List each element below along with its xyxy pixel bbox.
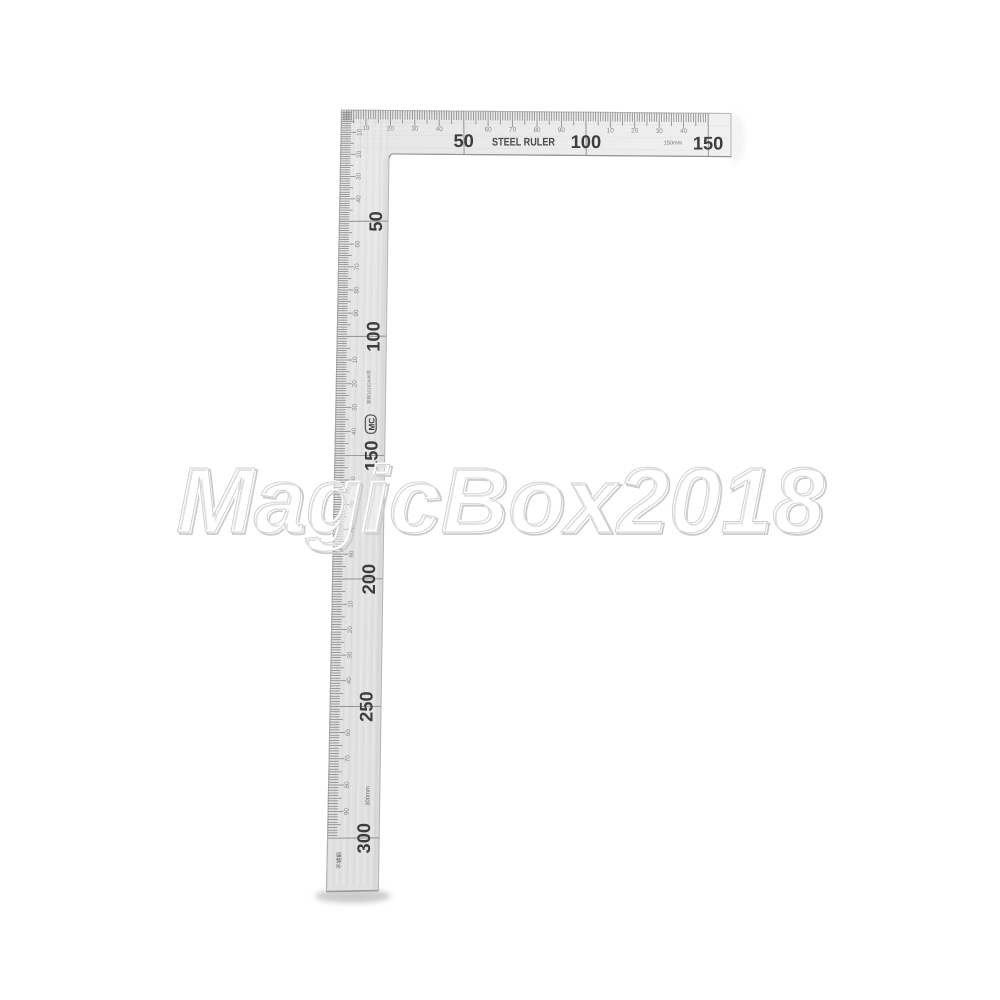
svg-text:40: 40 — [351, 428, 358, 436]
svg-text:40: 40 — [346, 677, 353, 685]
svg-text:70: 70 — [345, 755, 352, 763]
svg-text:100: 100 — [363, 321, 384, 352]
svg-text:90: 90 — [558, 127, 566, 134]
svg-text:80: 80 — [533, 127, 541, 134]
svg-text:40: 40 — [436, 126, 444, 133]
svg-text:10: 10 — [357, 128, 364, 136]
svg-text:20: 20 — [352, 380, 359, 388]
svg-text:150: 150 — [693, 132, 724, 153]
svg-text:30: 30 — [351, 404, 358, 412]
svg-text:200: 200 — [358, 564, 379, 595]
svg-text:STEEL RULER: STEEL RULER — [492, 136, 555, 148]
svg-text:80: 80 — [354, 286, 361, 294]
svg-text:50: 50 — [365, 211, 386, 231]
svg-text:10: 10 — [348, 600, 355, 608]
svg-text:300: 300 — [353, 823, 374, 854]
svg-text:20: 20 — [631, 128, 639, 135]
svg-text:70: 70 — [509, 127, 517, 134]
svg-text:60: 60 — [354, 240, 361, 248]
svg-text:60: 60 — [485, 126, 493, 133]
svg-text:20: 20 — [387, 125, 395, 132]
svg-text:150mm: 150mm — [664, 140, 683, 146]
svg-text:40: 40 — [355, 195, 362, 203]
svg-text:80: 80 — [344, 781, 351, 789]
svg-text:10: 10 — [352, 356, 359, 364]
svg-text:MC: MC — [367, 418, 376, 431]
svg-text:20: 20 — [356, 150, 363, 158]
svg-text:50: 50 — [454, 130, 474, 151]
svg-text:70: 70 — [354, 263, 361, 271]
svg-text:60: 60 — [345, 729, 352, 737]
svg-text:300mm: 300mm — [365, 786, 372, 806]
svg-text:10: 10 — [607, 127, 615, 134]
svg-text:90: 90 — [353, 309, 360, 317]
svg-text:MagicBox2018: MagicBox2018 — [176, 448, 824, 552]
svg-text:准制10102446号: 准制10102446号 — [367, 369, 372, 404]
svg-text:不锈钢: 不锈钢 — [336, 852, 343, 869]
svg-text:30: 30 — [356, 173, 363, 181]
svg-text:90: 90 — [344, 808, 351, 816]
svg-text:20: 20 — [347, 626, 354, 634]
svg-text:100: 100 — [571, 131, 602, 152]
svg-text:40: 40 — [680, 128, 688, 135]
svg-text:30: 30 — [411, 126, 419, 133]
svg-text:30: 30 — [347, 651, 354, 659]
svg-text:30: 30 — [656, 128, 664, 135]
svg-text:250: 250 — [356, 691, 377, 722]
